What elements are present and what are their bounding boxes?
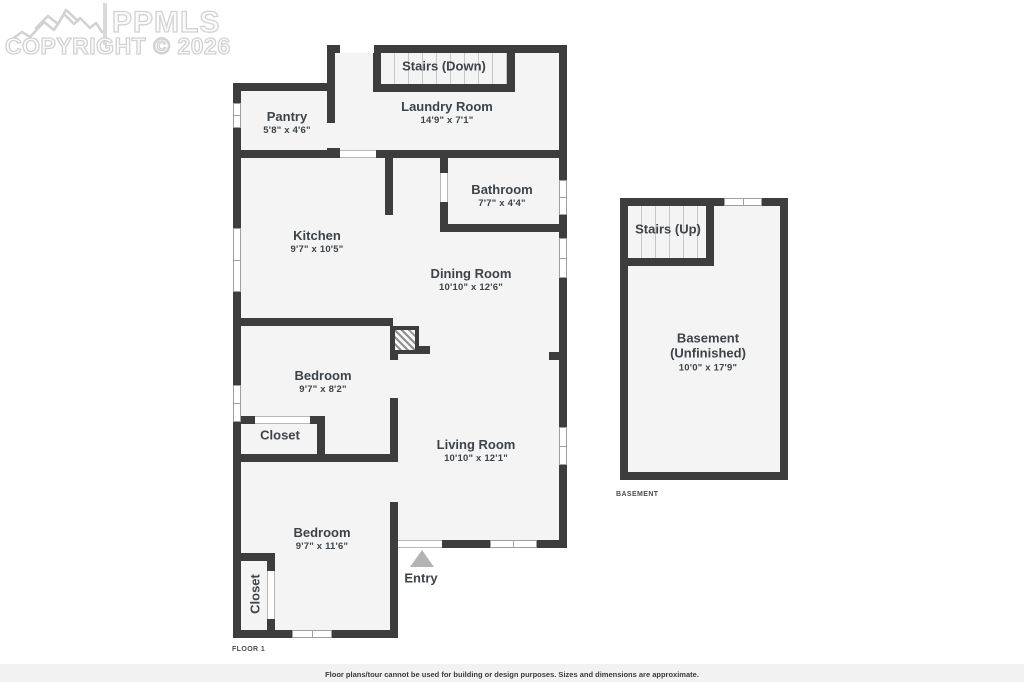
room-name: Stairs (Down) [402, 58, 486, 73]
room-name: Laundry Room [401, 99, 493, 114]
room-label-laundry: Laundry Room 14'9" x 7'1" [401, 99, 493, 127]
door-opening [255, 416, 310, 424]
window [233, 228, 241, 292]
window [292, 630, 332, 638]
wall [440, 224, 567, 232]
floor-plan-page: PPMLS COPYRIGHT © 2026 [0, 0, 1024, 682]
floor1-tag: FLOOR 1 [232, 646, 265, 653]
room-dims: 9'7" x 10'5" [291, 245, 344, 256]
room-dims: 9'7" x 11'6" [293, 542, 350, 553]
room-label-kitchen: Kitchen 9'7" x 10'5" [291, 228, 344, 256]
room-label-pantry: Pantry 5'8" x 4'6" [263, 109, 310, 137]
wall [327, 45, 335, 123]
room-name: Kitchen [291, 228, 344, 243]
wall [620, 472, 788, 480]
wall [385, 158, 393, 215]
room-name: Dining Room [431, 266, 512, 281]
wall [706, 198, 714, 266]
wall [233, 150, 567, 158]
wall [780, 198, 788, 480]
window [233, 385, 241, 422]
room-dims: 7'7" x 4'4" [471, 199, 532, 210]
door-opening [267, 571, 275, 619]
room-name: Stairs (Up) [635, 221, 701, 236]
disclaimer-text: Floor plans/tour cannot be used for buil… [325, 670, 699, 679]
room-label-stairs-down: Stairs (Down) [402, 58, 486, 73]
wall [233, 454, 398, 462]
wall [628, 258, 714, 266]
disclaimer-bar: Floor plans/tour cannot be used for buil… [0, 664, 1024, 682]
room-label-bathroom: Bathroom 7'7" x 4'4" [471, 182, 532, 210]
window [490, 540, 537, 548]
room-label-dining: Dining Room 10'10" x 12'6" [431, 266, 512, 294]
window [559, 238, 567, 278]
room-label-entry: Entry [404, 570, 437, 585]
entry-door-opening [398, 540, 442, 548]
room-dims: 10'10" x 12'1" [437, 454, 516, 465]
watermark: PPMLS COPYRIGHT © 2026 [0, 0, 240, 60]
room-label-closet1: Closet [260, 427, 300, 442]
room-name: Bedroom [293, 525, 350, 540]
wall [233, 318, 393, 326]
room-name: Entry [404, 570, 437, 585]
door-opening [340, 150, 376, 158]
room-name: Bathroom [471, 182, 532, 197]
room-dims: 10'10" x 12'6" [431, 283, 512, 294]
wall-opening [390, 462, 398, 502]
wall [373, 84, 515, 92]
watermark-copyright: COPYRIGHT © 2026 [5, 33, 231, 60]
wall [620, 198, 628, 480]
wall [559, 45, 567, 548]
wall-opening [390, 360, 398, 398]
room-label-stairs-up: Stairs (Up) [635, 221, 701, 236]
room-label-basement: Basement (Unfinished) 10'0" x 17'9" [670, 331, 746, 374]
entry-arrow-icon [410, 550, 434, 567]
room-name: Bedroom [294, 368, 351, 383]
wall [549, 352, 559, 360]
room-name: Pantry [263, 109, 310, 124]
room-label-living: Living Room 10'10" x 12'1" [437, 437, 516, 465]
room-name: Closet [247, 574, 262, 614]
room-dims: 10'0" x 17'9" [670, 362, 746, 373]
window [724, 198, 762, 206]
room-dims: 5'8" x 4'6" [263, 126, 310, 137]
room-name-line2: (Unfinished) [670, 346, 746, 361]
room-name: Closet [260, 427, 300, 442]
fireplace [391, 326, 419, 354]
basement-tag: BASEMENT [616, 491, 658, 498]
door-opening [440, 173, 448, 202]
wall [233, 83, 333, 91]
wall-opening [340, 45, 374, 53]
wall [620, 198, 788, 206]
window [233, 103, 241, 128]
room-label-closet2: Closet [247, 574, 262, 614]
wall-opening [327, 123, 335, 148]
window [559, 180, 567, 215]
room-name: Living Room [437, 437, 516, 452]
room-name: Basement [670, 331, 746, 346]
window [559, 427, 567, 465]
room-label-bedroom2: Bedroom 9'7" x 11'6" [293, 525, 350, 553]
room-dims: 9'7" x 8'2" [294, 385, 351, 396]
room-label-bedroom1: Bedroom 9'7" x 8'2" [294, 368, 351, 396]
room-dims: 14'9" x 7'1" [401, 116, 493, 127]
